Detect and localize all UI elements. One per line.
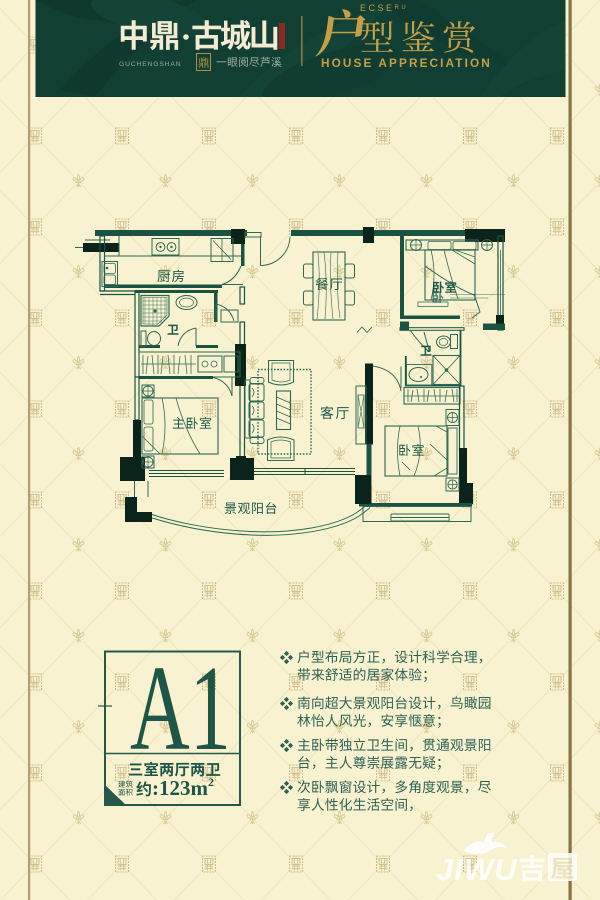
svg-text:GUCHENGSHAN: GUCHENGSHAN (119, 61, 181, 68)
svg-text::123m2: :123m2 (152, 775, 214, 800)
svg-text:HOUSE APPRECIATION: HOUSE APPRECIATION (321, 56, 492, 70)
svg-text:A1: A1 (130, 641, 231, 776)
svg-text:JIWU: JIWU (436, 852, 518, 887)
